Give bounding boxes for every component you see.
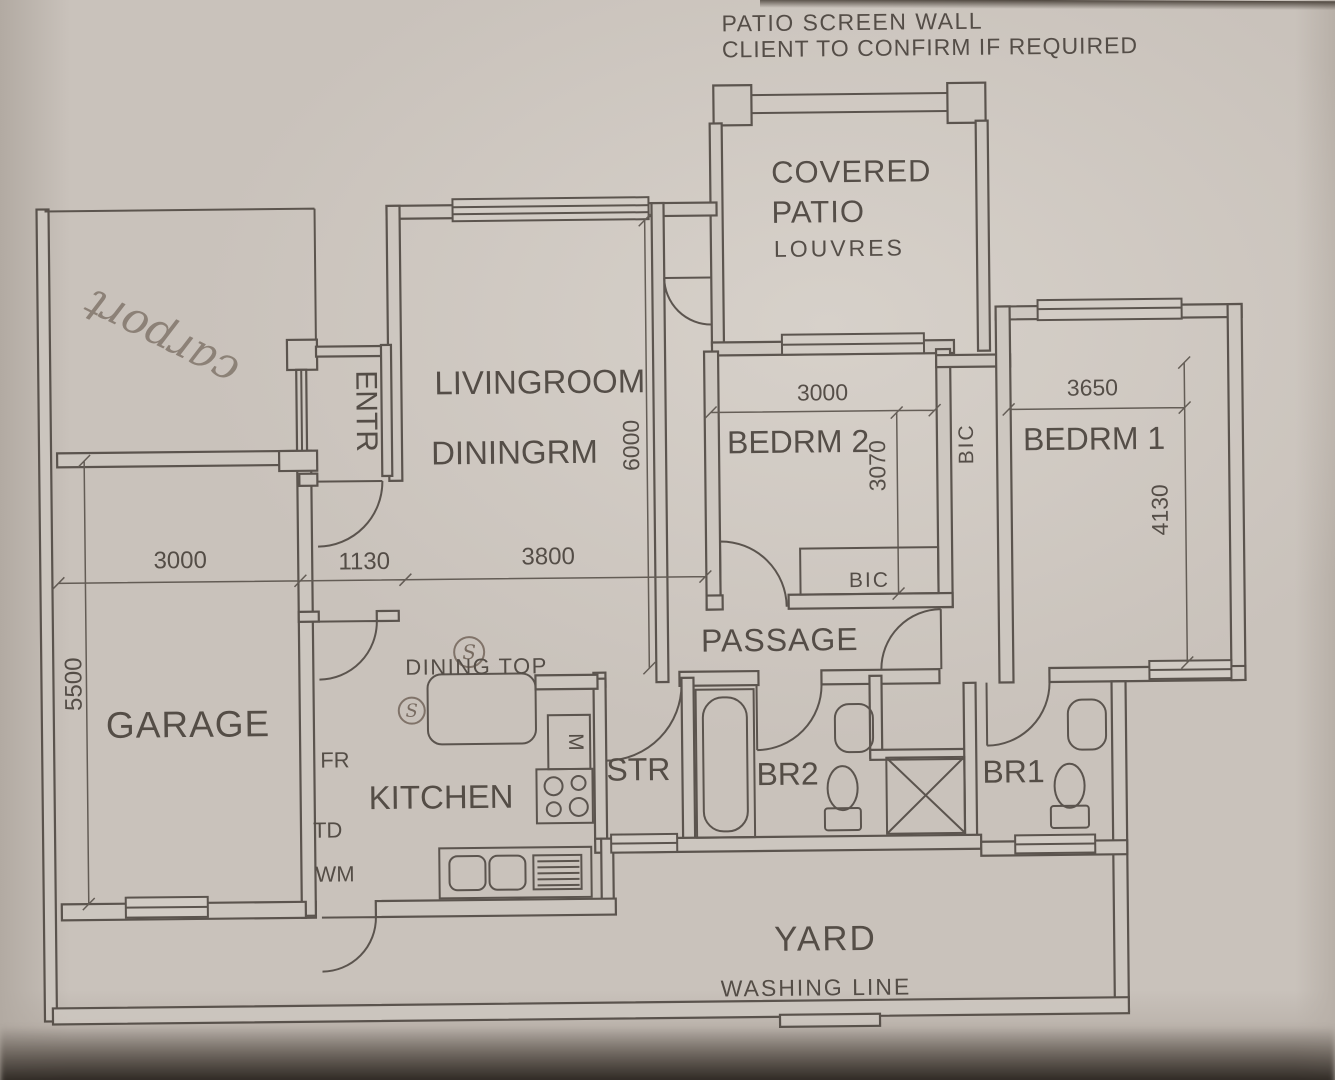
str-door-swing [606, 684, 683, 761]
front-door-swing [317, 481, 383, 547]
br1-door-swing [987, 682, 1051, 746]
bedroom1-door-swing [881, 609, 942, 670]
br2-door-swing [757, 684, 823, 750]
room-label-br2: BR2 [756, 755, 819, 792]
handwritten-carport: carport [76, 278, 247, 397]
dim-bedroom2-width: 3000 [797, 379, 848, 406]
dim-bedroom1-width: 3650 [1067, 374, 1118, 401]
photo-bottom-shadow [0, 1026, 1335, 1080]
room-label-yard: YARD [774, 919, 877, 959]
floor-plan-drawing: S S carport PATIO SCREEN WALL CLIENT TO … [0, 0, 1335, 1080]
br2-toilet [824, 766, 861, 830]
room-label-kitchen: KITCHEN [368, 778, 513, 817]
patio-column-left [713, 85, 751, 125]
label-bic-passage: BIC [955, 423, 978, 464]
photographed-floor-plan: S S carport PATIO SCREEN WALL CLIENT TO … [0, 0, 1335, 1080]
br2-basin [835, 704, 874, 752]
living-window [452, 197, 648, 221]
room-label-bedrm1: BEDRM 1 [1023, 420, 1166, 457]
bedroom2-door-swing [720, 541, 787, 608]
room-label-str: STR [606, 751, 670, 788]
dim-living-width: 3800 [521, 543, 575, 571]
circled-s-2-letter: S [405, 701, 418, 722]
kitchen-door-swing [319, 621, 378, 680]
patio-column-right [947, 83, 985, 123]
patio-screen-wall [751, 93, 947, 113]
stove [536, 769, 593, 824]
room-label-livingroom: LIVINGROOM [434, 362, 645, 401]
room-label-passage: PASSAGE [701, 621, 859, 659]
kitchen-sink [439, 847, 592, 899]
dim-bedroom1-length: 4130 [1146, 484, 1173, 535]
dim-garage-width: 3000 [153, 547, 207, 575]
room-label-louvres: LOUVRES [774, 234, 905, 261]
note-line2: CLIENT TO CONFIRM IF REQUIRED [722, 32, 1138, 62]
entrance-column [287, 340, 317, 370]
label-dining-top: DINING TOP [405, 653, 548, 679]
label-washing-machine: WM [315, 861, 354, 886]
label-washing-line: WASHING LINE [721, 973, 912, 1001]
label-tumble-dryer: TD [313, 817, 343, 842]
room-label-patio: PATIO [771, 194, 865, 230]
yard-door-swing [322, 917, 377, 972]
shower-box [886, 757, 965, 834]
windows [118, 191, 1233, 918]
room-label-covered: COVERED [771, 153, 932, 190]
note-line1: PATIO SCREEN WALL [721, 8, 983, 37]
dim-bedroom2-length: 3070 [864, 440, 891, 491]
room-label-entr: ENTR [349, 370, 383, 452]
br1-toilet [1050, 764, 1089, 828]
dim-entrance-width: 1130 [338, 548, 390, 576]
room-label-br1: BR1 [982, 753, 1045, 790]
label-bic-bedroom2: BIC [849, 569, 890, 592]
bathtub [696, 689, 756, 838]
room-label-garage: GARAGE [106, 703, 271, 746]
room-label-bedrm2: BEDRM 2 [727, 423, 870, 460]
br1-basin [1068, 699, 1107, 749]
label-fridge: FR [320, 747, 350, 772]
dim-garage-length: 5500 [60, 657, 88, 711]
dim-living-length: 6000 [618, 420, 645, 471]
room-label-diningrm: DININGRM [431, 433, 598, 472]
label-microwave: M [564, 733, 587, 751]
patio-door-swing [664, 278, 711, 325]
dining-counter [427, 673, 536, 744]
